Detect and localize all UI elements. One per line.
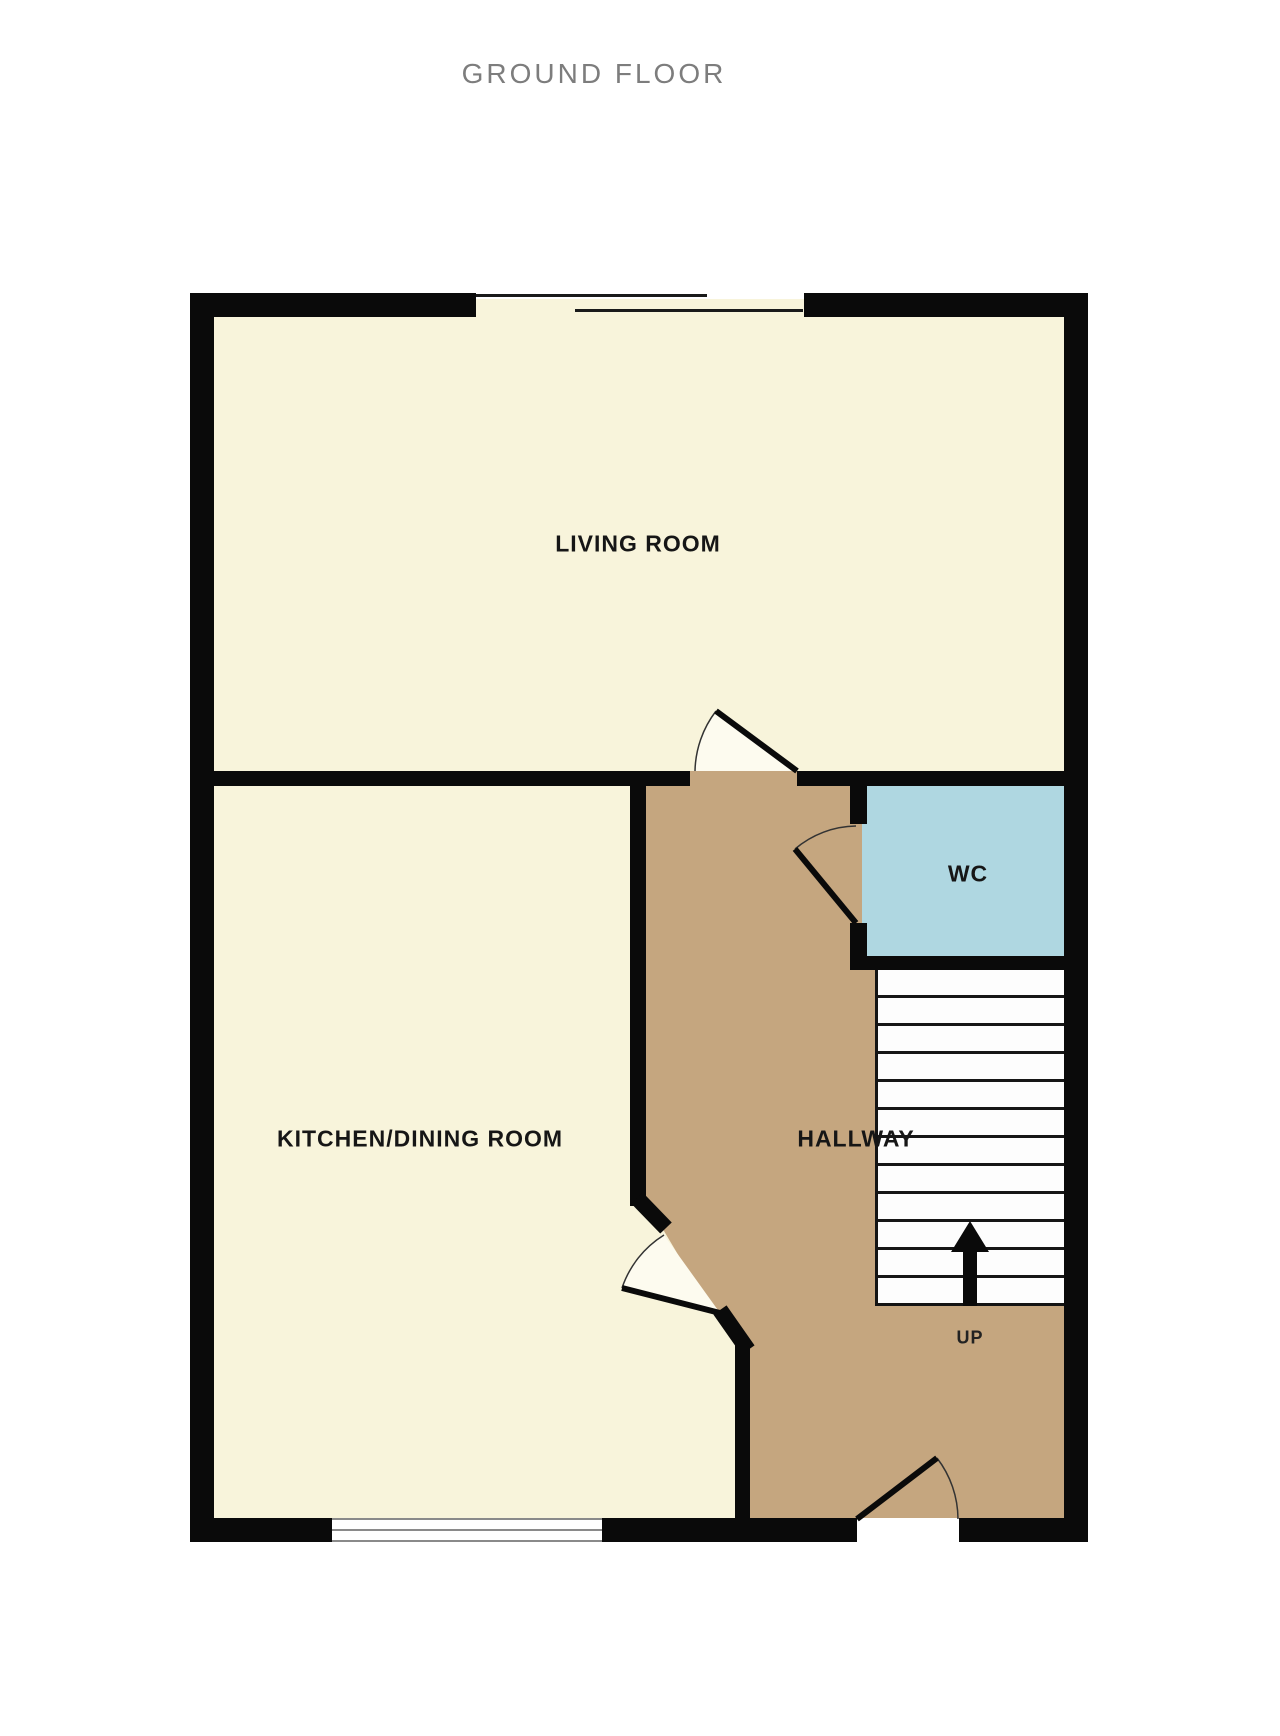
doors-and-details-layer <box>0 0 1280 1736</box>
kitchen-dining-label: KITCHEN/DINING ROOM <box>277 1126 563 1153</box>
wc-door-leaf <box>795 849 856 923</box>
wc-door <box>795 826 856 923</box>
stairs-up-label: UP <box>956 1328 983 1349</box>
front-door-arc <box>937 1458 958 1519</box>
floorplan-page: GROUND FLOOR <box>0 0 1280 1736</box>
wall-angled-upper <box>637 1198 666 1228</box>
wall-angled-lower <box>720 1310 748 1350</box>
up-arrow-icon <box>951 1221 989 1306</box>
living-room-door <box>695 711 797 771</box>
front-door-leaf <box>857 1458 937 1519</box>
front-door <box>857 1458 958 1519</box>
wc-door-arc <box>795 826 856 849</box>
wc-label: WC <box>948 861 988 888</box>
kitchen-door <box>622 1235 720 1313</box>
ground-floor-plan: LIVING ROOM KITCHEN/DINING ROOM HALLWAY … <box>0 0 1280 1736</box>
hallway-label: HALLWAY <box>797 1126 914 1153</box>
living-room-label: LIVING ROOM <box>555 531 721 558</box>
